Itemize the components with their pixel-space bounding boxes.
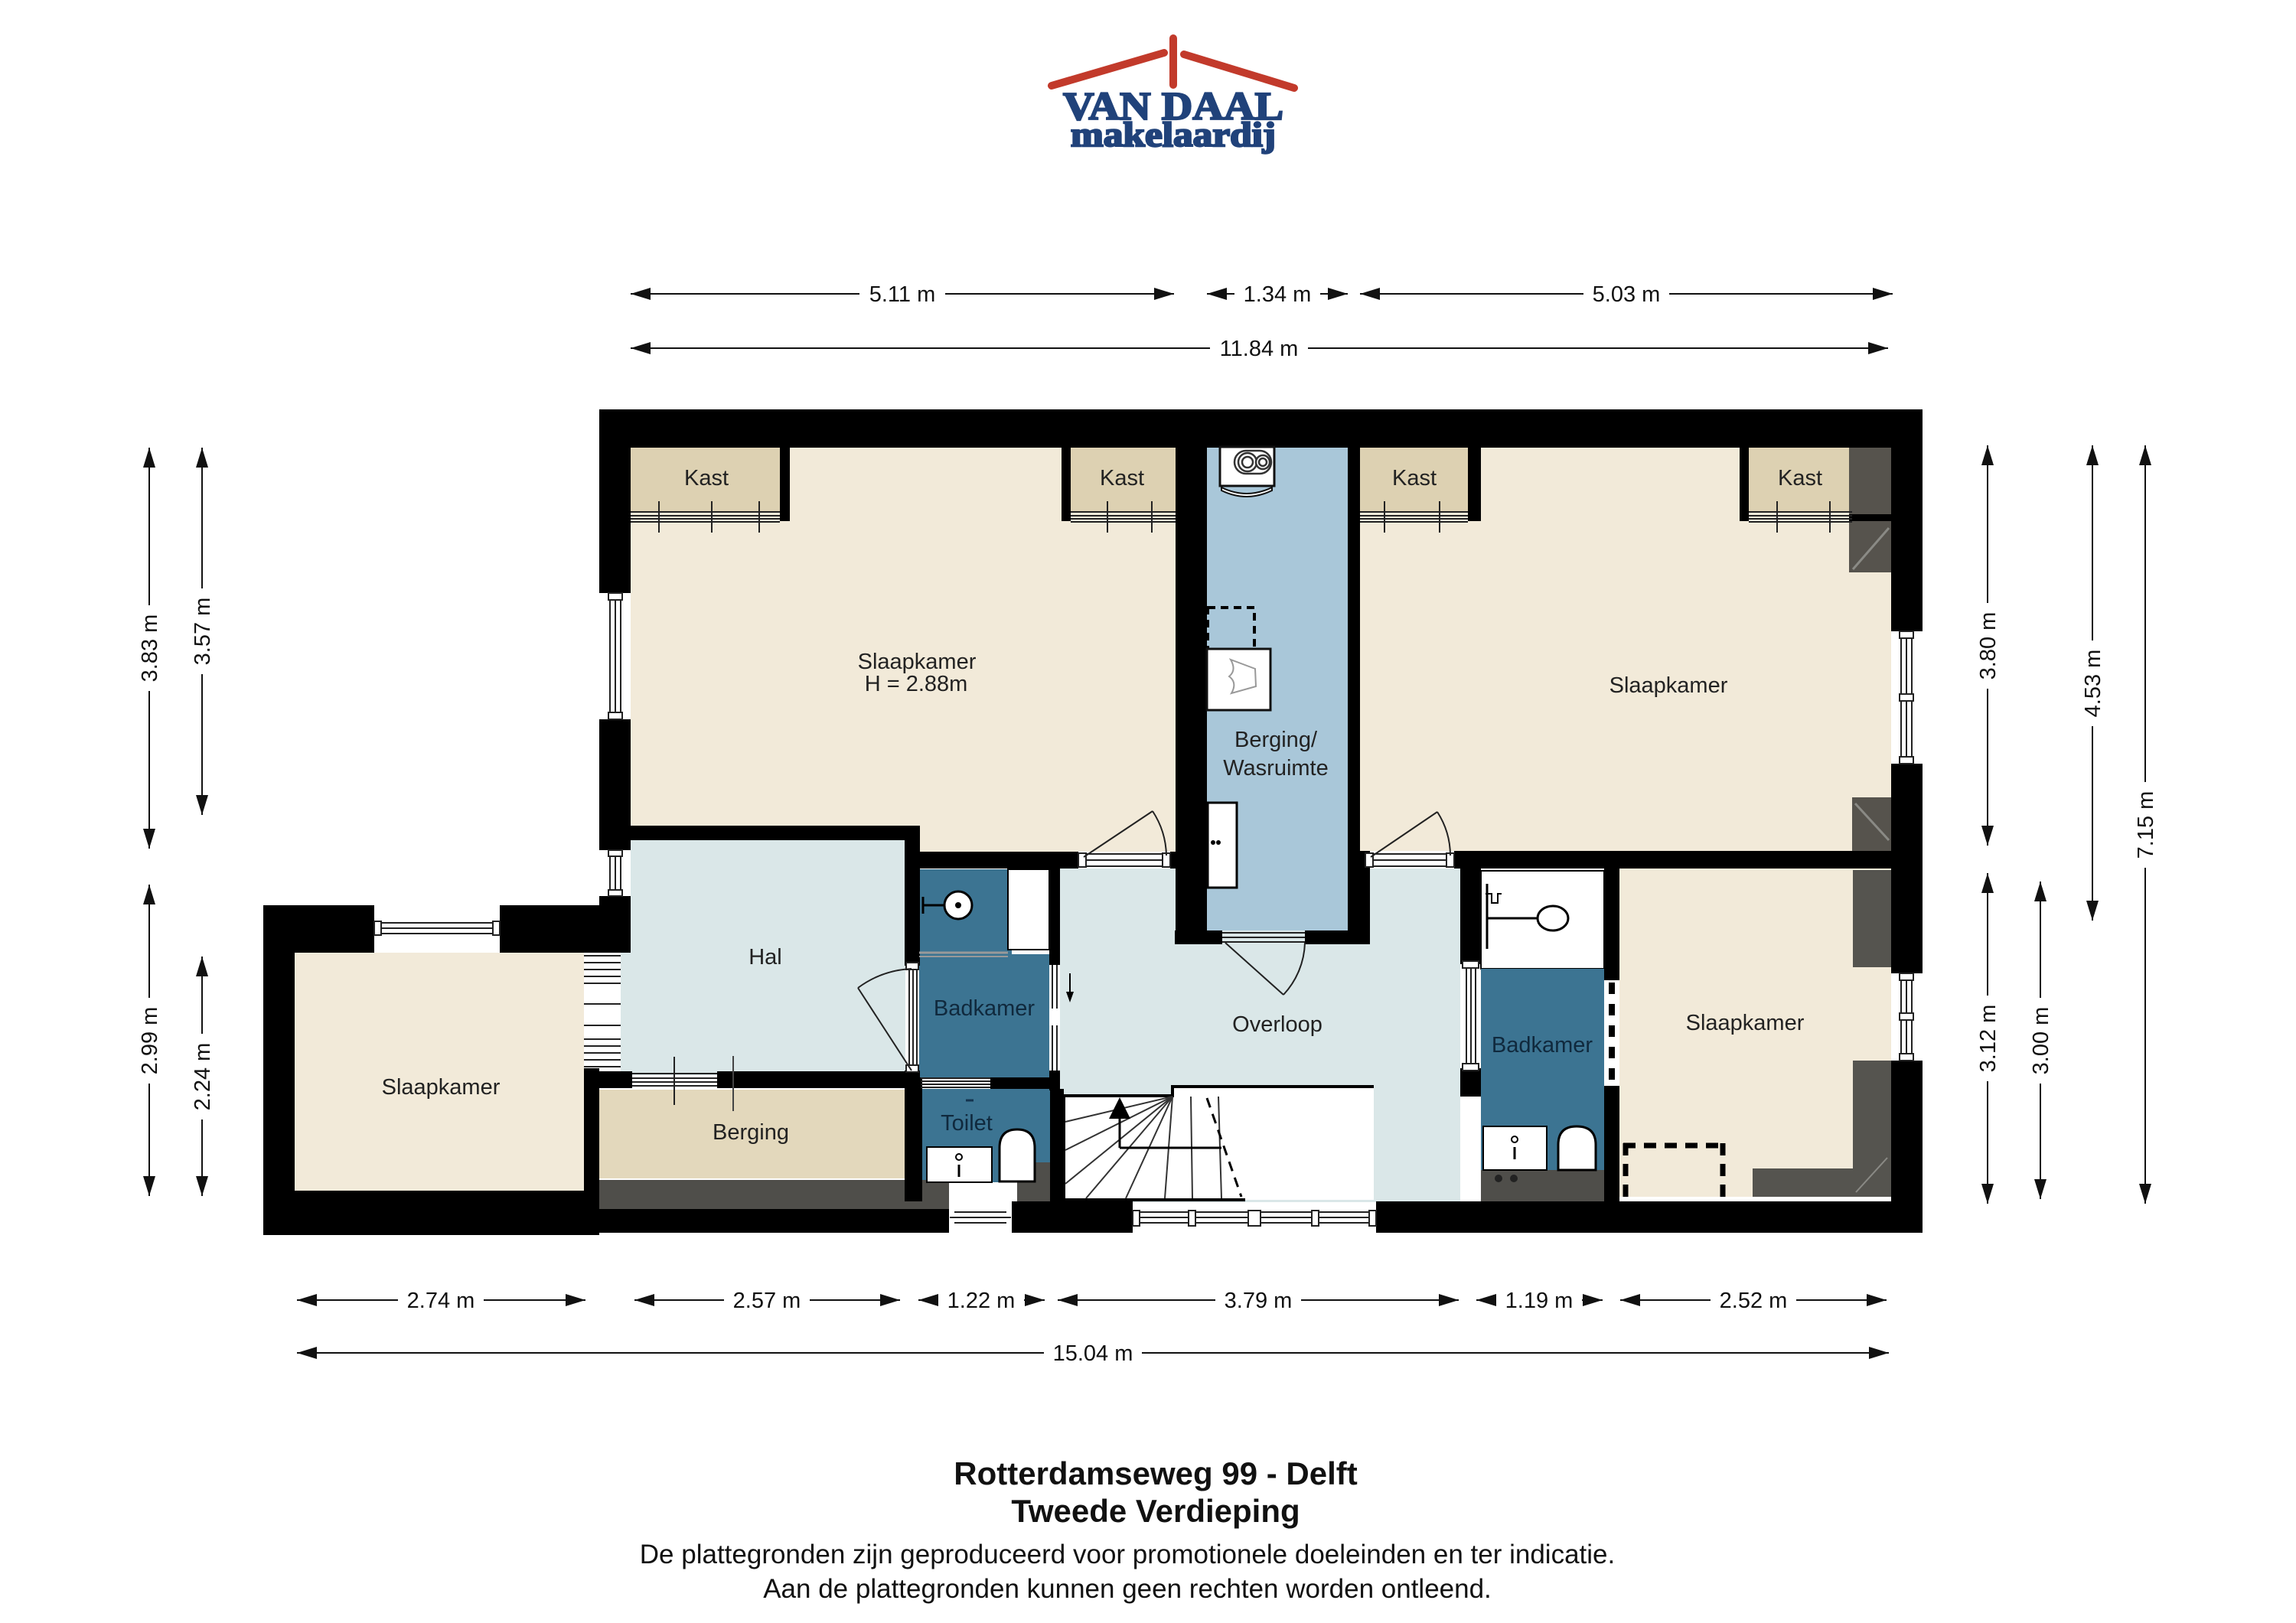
svg-text:2.57 m: 2.57 m bbox=[733, 1289, 801, 1313]
svg-text:3.12 m: 3.12 m bbox=[1976, 1005, 2001, 1073]
svg-text:4.53 m: 4.53 m bbox=[2081, 650, 2105, 718]
svg-text:3.80 m: 3.80 m bbox=[1976, 612, 2001, 680]
svg-text:Berging/: Berging/ bbox=[1234, 728, 1318, 752]
svg-text:Toilet: Toilet bbox=[941, 1111, 993, 1136]
svg-text:Slaapkamer: Slaapkamer bbox=[858, 650, 977, 674]
svg-text:Berging: Berging bbox=[713, 1120, 789, 1145]
svg-text:Hal: Hal bbox=[748, 945, 782, 970]
svg-text:Kast: Kast bbox=[1100, 466, 1144, 490]
svg-text:Rotterdamseweg 99 - Delft: Rotterdamseweg 99 - Delft bbox=[954, 1455, 1357, 1491]
svg-text:Kast: Kast bbox=[684, 466, 729, 490]
svg-text:2.24 m: 2.24 m bbox=[191, 1043, 215, 1111]
svg-text:Badkamer: Badkamer bbox=[934, 996, 1035, 1021]
svg-text:De plattegronden zijn geproduc: De plattegronden zijn geproduceerd voor … bbox=[640, 1540, 1615, 1569]
svg-text:Slaapkamer: Slaapkamer bbox=[1686, 1011, 1805, 1035]
svg-text:1.34 m: 1.34 m bbox=[1244, 282, 1312, 307]
svg-text:Kast: Kast bbox=[1778, 466, 1822, 490]
svg-text:5.11 m: 5.11 m bbox=[869, 282, 936, 307]
svg-text:Kast: Kast bbox=[1392, 466, 1437, 490]
svg-text:H = 2.88m: H = 2.88m bbox=[865, 672, 968, 696]
svg-text:makelaardij: makelaardij bbox=[1071, 115, 1276, 154]
svg-text:11.84 m: 11.84 m bbox=[1220, 337, 1299, 361]
svg-text:3.57 m: 3.57 m bbox=[191, 598, 215, 666]
svg-text:Wasruimte: Wasruimte bbox=[1223, 756, 1329, 781]
svg-text:Aan de plattegronden kunnen ge: Aan de plattegronden kunnen geen rechten… bbox=[763, 1574, 1492, 1604]
svg-text:5.03 m: 5.03 m bbox=[1593, 282, 1661, 307]
svg-text:1.22 m: 1.22 m bbox=[947, 1289, 1016, 1313]
svg-text:Tweede Verdieping: Tweede Verdieping bbox=[1011, 1493, 1300, 1529]
svg-text:15.04 m: 15.04 m bbox=[1053, 1341, 1133, 1366]
svg-text:3.00 m: 3.00 m bbox=[2029, 1007, 2053, 1075]
svg-text:2.52 m: 2.52 m bbox=[1720, 1289, 1788, 1313]
svg-text:Overloop: Overloop bbox=[1232, 1012, 1322, 1037]
svg-text:1.19 m: 1.19 m bbox=[1505, 1289, 1574, 1313]
svg-text:Slaapkamer: Slaapkamer bbox=[382, 1075, 501, 1100]
svg-text:Badkamer: Badkamer bbox=[1492, 1033, 1593, 1058]
svg-text:2.74 m: 2.74 m bbox=[407, 1289, 475, 1313]
svg-text:2.99 m: 2.99 m bbox=[138, 1007, 162, 1075]
svg-text:Slaapkamer: Slaapkamer bbox=[1609, 673, 1728, 698]
svg-text:3.83 m: 3.83 m bbox=[138, 614, 162, 683]
svg-text:3.79 m: 3.79 m bbox=[1225, 1289, 1293, 1313]
svg-text:7.15 m: 7.15 m bbox=[2134, 791, 2158, 859]
